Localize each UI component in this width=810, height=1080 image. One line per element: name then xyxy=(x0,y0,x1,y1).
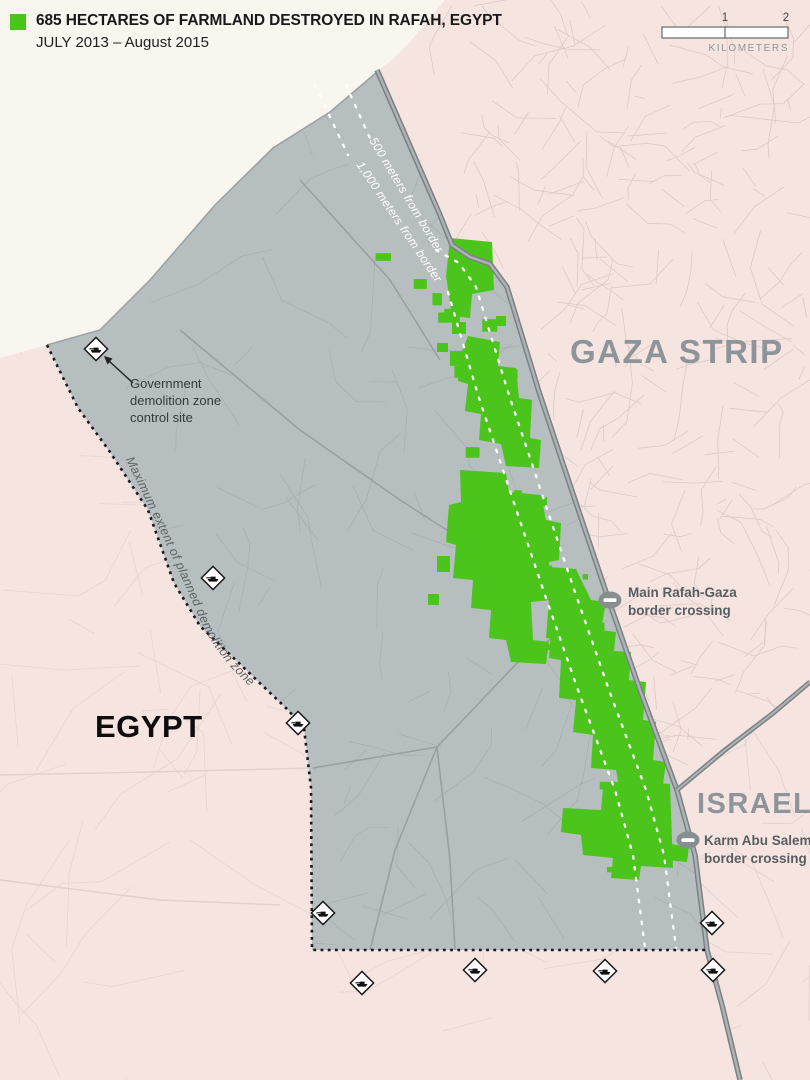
header: 685 HECTARES OF FARMLAND DESTROYED IN RA… xyxy=(10,11,502,51)
main-crossing-label-line1: Main Rafah-Gaza xyxy=(628,585,737,600)
scale-tick-1: 1 xyxy=(722,12,728,24)
scale-unit-label: KILOMETERS xyxy=(709,43,789,54)
israel-label: ISRAEL xyxy=(697,788,810,820)
map-page: 500 meters from border 1,000 meters from… xyxy=(0,0,810,1080)
farmland-legend-swatch xyxy=(10,14,26,30)
map-subtitle: JULY 2013 – August 2015 xyxy=(36,34,502,51)
scale-tick-2: 2 xyxy=(783,12,789,24)
control-site-label-line3: control site xyxy=(130,410,193,425)
karm-crossing-icon xyxy=(677,832,700,849)
gaza-strip-label: GAZA STRIP xyxy=(570,333,784,370)
karm-crossing-label-line2: border crossing xyxy=(704,851,807,866)
main-crossing-label-line2: border crossing xyxy=(628,603,731,618)
map-title: 685 HECTARES OF FARMLAND DESTROYED IN RA… xyxy=(36,11,502,30)
control-site-label-line2: demolition zone xyxy=(130,393,221,408)
egypt-label: EGYPT xyxy=(95,709,203,744)
karm-crossing-label-line1: Karm Abu Salem xyxy=(704,833,810,848)
rafah-map: 500 meters from border 1,000 meters from… xyxy=(0,0,810,1080)
control-site-label-line1: Government xyxy=(130,376,202,391)
main-crossing-icon xyxy=(599,592,622,609)
